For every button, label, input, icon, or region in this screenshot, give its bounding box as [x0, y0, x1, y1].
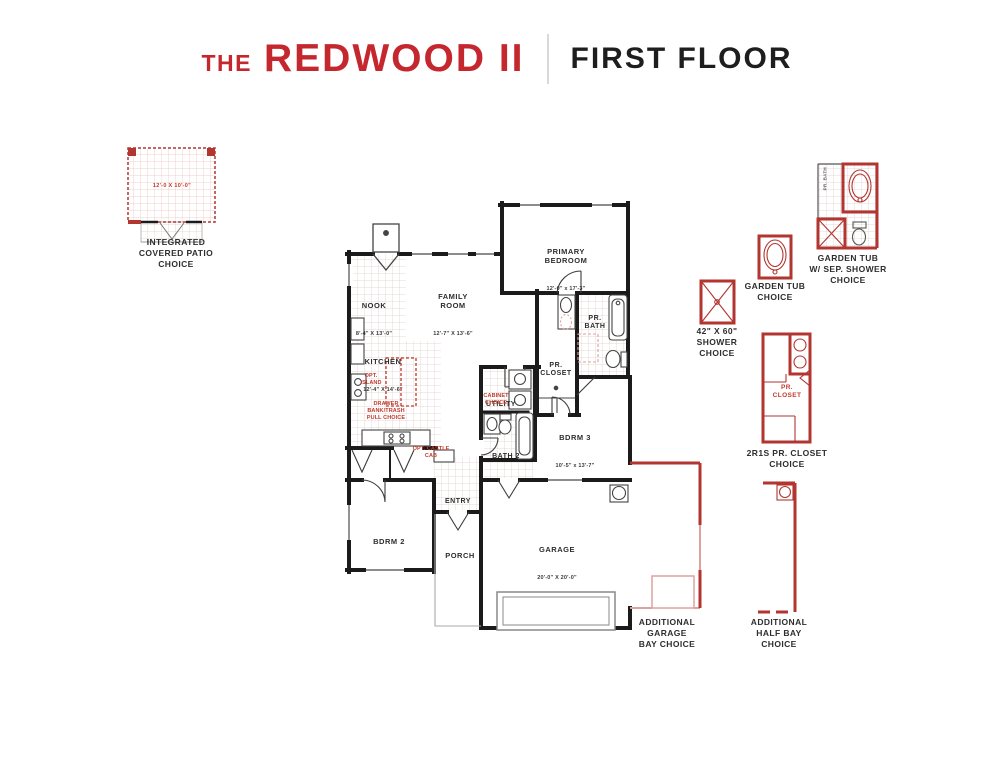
- room-label-porch: PORCH: [445, 533, 475, 580]
- room-label-garage: GARAGE 20'-0" X 20'-0": [537, 527, 577, 601]
- option-label-castle-cab: OPT. CASTLE CAB: [413, 446, 450, 460]
- room-label-pr-closet: PR. CLOSET: [540, 343, 571, 397]
- room-label-primary-bedroom: PRIMARY BEDROOM 12'-0" x 17'-3": [545, 229, 588, 311]
- room-label-entry: ENTRY: [445, 479, 471, 525]
- room-label-bdrm2: BDRM 2: [373, 519, 405, 566]
- option-label-garden-tub: GARDEN TUB CHOICE: [745, 281, 806, 303]
- room-label-bath2: BATH 2: [492, 434, 520, 480]
- option-room-tag-pr-bath: PR. BATH: [822, 167, 827, 190]
- floorplan-page: THE REDWOOD II FIRST FLOOR: [0, 0, 994, 768]
- patio-dims: 12'-0 X 10'-0": [153, 183, 191, 190]
- garden-tub-choice-outline: [759, 236, 791, 278]
- room-label-bdrm3: BDRM 3 10'-5" x 13'-7": [556, 415, 595, 489]
- option-label-drawer-bank: DRAWER BANK/TRASH PULL CHOICE: [367, 401, 405, 422]
- option-label-pr-closet-choice: 2R1S PR. CLOSET CHOICE: [747, 448, 828, 470]
- shower-choice-outline: [701, 281, 734, 323]
- option-label-additional-half-bay: ADDITIONAL HALF BAY CHOICE: [751, 617, 807, 650]
- option-label-island: OPT. ISLAND: [360, 373, 381, 387]
- additional-garage-bay-outline: [630, 463, 700, 608]
- room-label-family: FAMILY ROOM 12'-7" X 13'-6": [433, 274, 473, 356]
- option-label-cabinet-choice: CABINET CHOICE: [483, 393, 508, 407]
- additional-half-bay-outline: [758, 483, 795, 612]
- patio-option-label: INTEGRATED COVERED PATIO CHOICE: [139, 237, 213, 270]
- option-inner-pr-closet: PR. CLOSET: [773, 384, 802, 400]
- option-label-additional-garage-bay: ADDITIONAL GARAGE BAY CHOICE: [639, 617, 695, 650]
- option-label-shower-choice: 42" X 60" SHOWER CHOICE: [697, 326, 738, 359]
- room-label-pr-bath: PR. BATH: [585, 296, 606, 350]
- option-label-garden-tub-shower: GARDEN TUB W/ SEP. SHOWER CHOICE: [809, 253, 886, 286]
